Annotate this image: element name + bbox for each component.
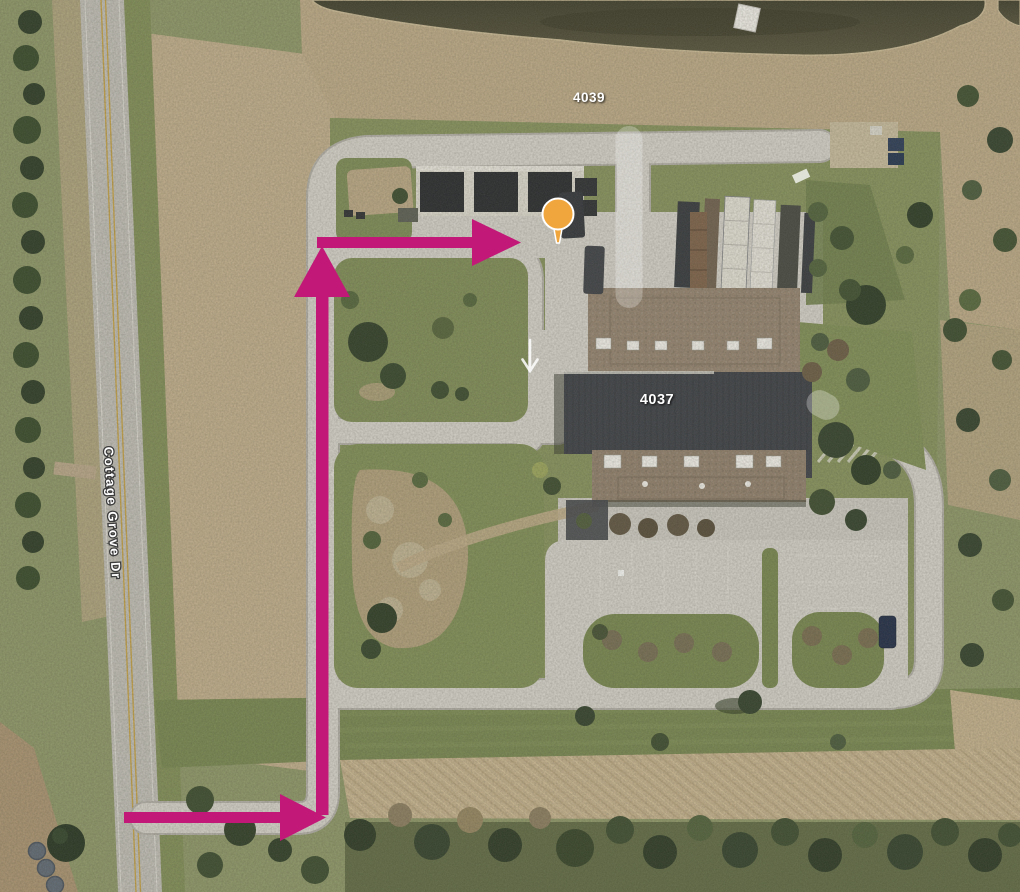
map-overlays: 4039 4037 Cottage Grove Dr [0, 0, 1020, 892]
building-label-4039: 4039 [573, 90, 605, 105]
one-way-arrow-marking [523, 340, 538, 371]
route-arrows [124, 219, 521, 841]
path-highlight [616, 126, 845, 424]
street-name-label: Cottage Grove Dr [101, 446, 124, 580]
aerial-map-view: 4039 4037 Cottage Grove Dr [0, 0, 1020, 892]
route-arrow-north [294, 246, 350, 815]
route-arrow-entrance [124, 794, 326, 841]
route-arrow-east [317, 219, 521, 266]
destination-pin[interactable] [543, 199, 574, 244]
building-label-4037: 4037 [640, 392, 674, 408]
